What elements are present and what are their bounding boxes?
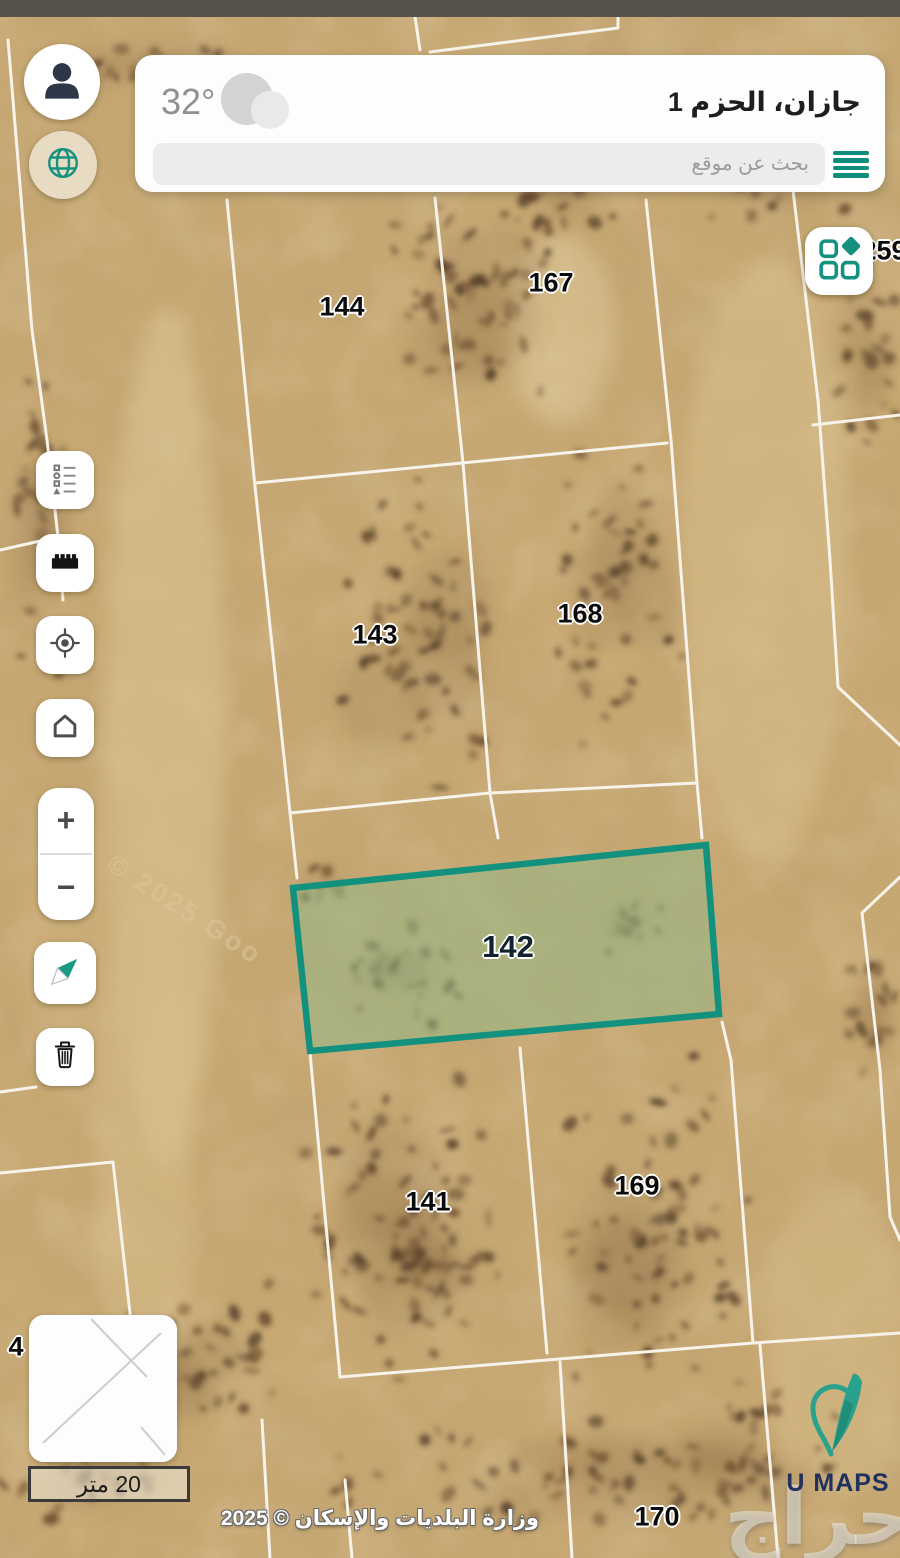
home-icon: [44, 705, 86, 752]
zoom-controls: + −: [38, 788, 94, 920]
parcel-label: 168: [557, 599, 602, 630]
layers-grid-icon: [814, 234, 864, 289]
map-pin-feather-icon: [801, 1449, 875, 1466]
language-button[interactable]: [29, 131, 97, 199]
zoom-out-button[interactable]: −: [38, 855, 94, 920]
parcel-label: 144: [319, 292, 364, 323]
status-bar: [0, 0, 900, 17]
compass-button[interactable]: [34, 942, 96, 1004]
cloud-icon: [217, 71, 297, 133]
gps-target-icon: [43, 621, 87, 670]
umaps-logo-text: U MAPS: [782, 1469, 894, 1498]
person-icon: [35, 53, 89, 112]
ruler-icon: [43, 539, 87, 588]
legend-button[interactable]: [36, 451, 94, 509]
parcel-label: 169: [614, 1171, 659, 1202]
delete-button[interactable]: [36, 1028, 94, 1086]
legend-list-icon: [44, 457, 86, 504]
temperature-label: 32°: [161, 81, 215, 123]
parcel-label: 143: [352, 620, 397, 651]
zoom-in-button[interactable]: +: [38, 788, 94, 853]
parcel-label: 167: [528, 268, 573, 299]
measure-button[interactable]: [36, 534, 94, 592]
layers-button[interactable]: [805, 227, 873, 295]
app-screen: © 2025 Goo 144 167 143 168 141 169 170 2…: [0, 0, 900, 1558]
parcel-label: 4: [8, 1332, 23, 1363]
menu-button[interactable]: [833, 147, 869, 181]
weather-widget: 32°: [161, 71, 297, 133]
parcel-label: 141: [405, 1187, 450, 1218]
compass-needle-icon: [40, 946, 90, 1001]
trash-icon: [44, 1034, 86, 1081]
profile-button[interactable]: [24, 44, 100, 120]
scale-bar-label: 20 متر: [77, 1471, 141, 1498]
highlighted-parcel-label: 142: [482, 929, 534, 965]
globe-icon: [41, 141, 85, 190]
locate-button[interactable]: [36, 616, 94, 674]
search-input[interactable]: [153, 143, 825, 185]
map-attribution: وزارة البلديات والإسكان © 2025: [0, 1506, 760, 1531]
umaps-logo: U MAPS: [782, 1370, 894, 1498]
location-title: جازان، الحزم 1: [668, 87, 861, 118]
home-button[interactable]: [36, 699, 94, 757]
header-card: 32° جازان، الحزم 1: [135, 55, 885, 192]
scale-bar: 20 متر: [28, 1466, 190, 1502]
minimap-inset[interactable]: [29, 1315, 177, 1462]
